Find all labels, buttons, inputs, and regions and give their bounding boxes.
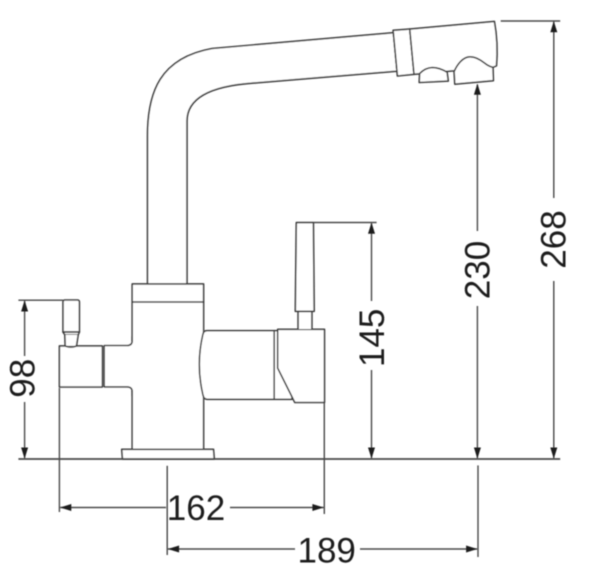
svg-text:268: 268 (534, 210, 573, 268)
svg-text:145: 145 (353, 309, 392, 367)
svg-text:189: 189 (297, 531, 355, 566)
svg-text:230: 230 (458, 241, 497, 299)
svg-text:162: 162 (167, 489, 225, 528)
svg-text:98: 98 (3, 359, 42, 398)
